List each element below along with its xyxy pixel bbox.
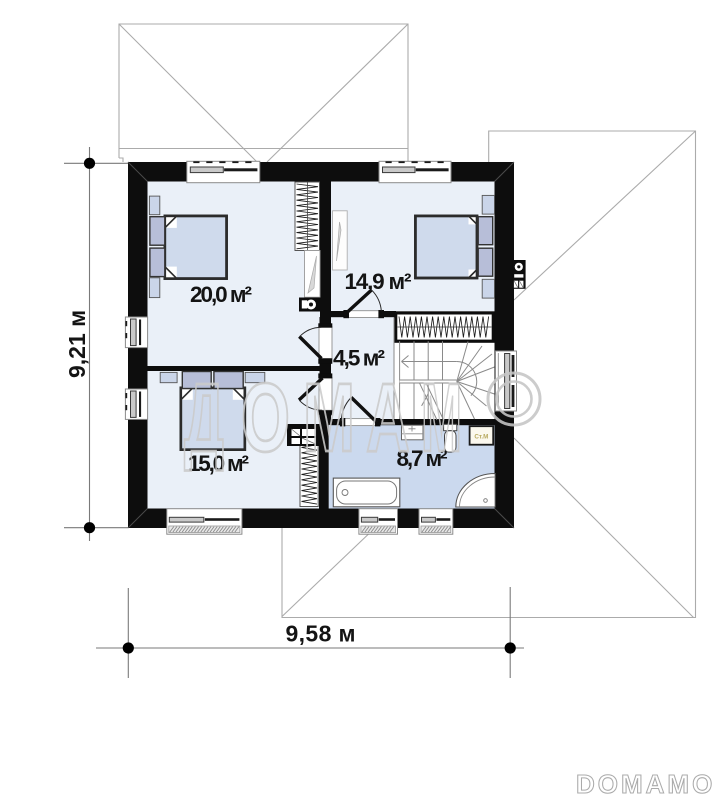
svg-text:О: О bbox=[241, 363, 290, 472]
svg-text:DOMAMO: DOMAMO bbox=[576, 769, 715, 799]
svg-text:А: А bbox=[366, 363, 410, 472]
svg-text:М: М bbox=[303, 363, 355, 472]
svg-text:20,0 м²: 20,0 м² bbox=[190, 282, 253, 307]
svg-text:Д: Д bbox=[184, 363, 224, 472]
svg-text:М: М bbox=[421, 363, 462, 472]
svg-text:9,58 м: 9,58 м bbox=[286, 621, 356, 647]
svg-text:Ст.М: Ст.М bbox=[474, 434, 488, 441]
svg-text:9,21 м: 9,21 м bbox=[64, 310, 90, 378]
svg-text:14,9 м²: 14,9 м² bbox=[345, 269, 413, 294]
